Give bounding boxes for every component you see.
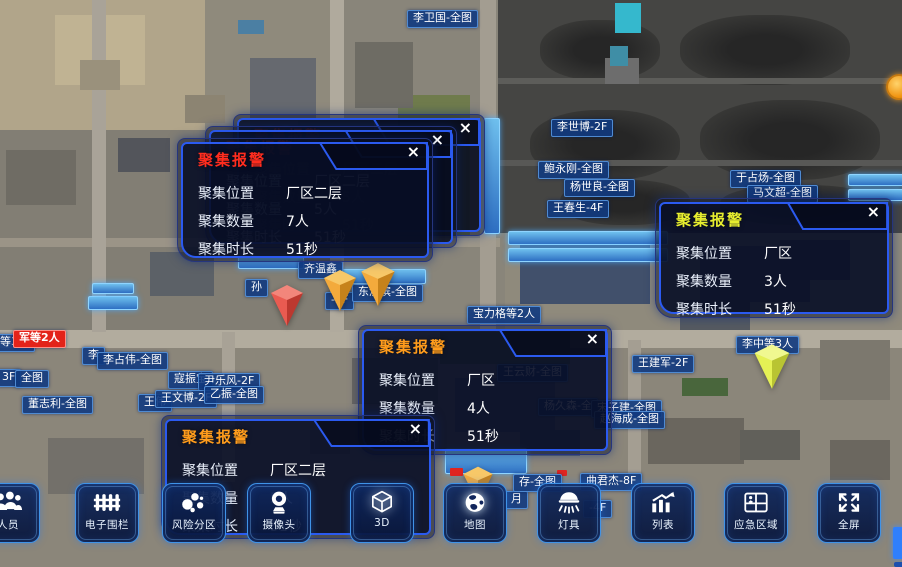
bubbles-button[interactable]: 风险分区 — [162, 483, 226, 543]
field-label: 聚集位置 — [198, 183, 286, 203]
tool-label: 人员 — [0, 517, 39, 532]
building — [740, 430, 800, 460]
field-label: 聚集数量 — [676, 271, 764, 291]
field-label: 聚集时长 — [676, 299, 764, 319]
people-icon — [0, 490, 23, 515]
building — [610, 46, 628, 66]
alarm-field-row: 聚集位置厂区 — [676, 243, 792, 263]
alarm-panel: 聚集报警聚集位置厂区二层聚集数量7人聚集时长51秒× — [177, 138, 433, 262]
map-pin-red[interactable] — [266, 281, 308, 327]
tool-label: 风险分区 — [163, 517, 225, 532]
alarm-field-row: 聚集数量3人 — [676, 271, 787, 291]
pipe-rack-highlight — [508, 231, 668, 245]
lamp-button[interactable]: 灯具 — [537, 483, 601, 543]
pipe-rack-highlight — [88, 296, 138, 310]
building — [80, 60, 120, 90]
lamp-icon — [554, 490, 584, 515]
person-tag[interactable]: 宝力格等2人 — [467, 306, 541, 324]
alarm-panel: 聚集报警聚集位置厂区聚集数量3人聚集时长51秒× — [655, 198, 893, 318]
field-label: 聚集位置 — [379, 370, 467, 390]
alarm-field-row: 聚集位置厂区二层 — [198, 183, 342, 203]
person-tag[interactable]: 李世博-2F — [551, 119, 613, 137]
person-tag[interactable]: 全图 — [15, 370, 49, 388]
pipe-rack-highlight — [508, 248, 668, 262]
building — [615, 3, 641, 33]
chart-icon — [648, 490, 678, 515]
field-value: 厂区二层 — [286, 183, 342, 203]
fence-icon — [92, 490, 122, 515]
fullscreen-button[interactable]: 全屏 — [817, 483, 881, 543]
person-tag[interactable]: 王春生-4F — [547, 200, 609, 218]
tool-label: 全屏 — [818, 517, 880, 532]
tool-label: 电子围栏 — [76, 517, 138, 532]
person-tag[interactable]: 王建军-2F — [632, 355, 694, 373]
tool-label: 灯具 — [538, 517, 600, 532]
person-tag[interactable]: 月 — [505, 491, 528, 509]
person-tag[interactable]: 乙振-全图 — [204, 386, 264, 404]
person-tag[interactable]: 李占伟-全图 — [97, 352, 168, 370]
tool-label: 3D — [351, 517, 413, 529]
edge-tab[interactable] — [894, 562, 902, 567]
globe-icon — [460, 490, 490, 515]
map-pin-yellow[interactable] — [750, 340, 794, 390]
coal-pile — [700, 100, 880, 180]
building — [185, 95, 225, 123]
field-value: 4人 — [467, 398, 490, 418]
alarm-panel-title: 聚集报警 — [198, 149, 266, 170]
pipe-rack-highlight — [848, 174, 902, 186]
edge-tab[interactable] — [893, 527, 902, 559]
alarm-field-row: 聚集位置厂区二层 — [182, 460, 326, 480]
alarm-field-row: 聚集位置厂区 — [379, 370, 495, 390]
close-icon[interactable]: × — [586, 331, 599, 347]
close-icon[interactable]: × — [867, 204, 880, 220]
chart-button[interactable]: 列表 — [631, 483, 695, 543]
alarm-field-row: 聚集数量7人 — [198, 211, 309, 231]
coal-path — [498, 78, 902, 84]
building — [118, 138, 170, 172]
map-pin-orange[interactable] — [320, 266, 360, 312]
field-label: 聚集时长 — [198, 239, 286, 259]
globe-button[interactable]: 地图 — [443, 483, 507, 543]
fence-button[interactable]: 电子围栏 — [75, 483, 139, 543]
emergency-button[interactable]: 应急区域 — [724, 483, 788, 543]
field-label: 聚集位置 — [676, 243, 764, 263]
cube-button[interactable]: 3D — [350, 483, 414, 543]
close-icon[interactable]: × — [409, 421, 422, 437]
people-button[interactable]: 人员 — [0, 483, 40, 543]
vegetation — [682, 378, 728, 396]
close-icon[interactable]: × — [459, 120, 472, 136]
tool-label: 列表 — [632, 517, 694, 532]
field-value: 7人 — [286, 211, 309, 231]
person-tag[interactable]: 鲍永刚-全图 — [538, 161, 609, 179]
field-value: 厂区二层 — [270, 460, 326, 480]
alarm-field-row: 聚集时长51秒 — [676, 299, 796, 319]
fullscreen-icon — [834, 490, 864, 515]
emergency-icon — [741, 490, 771, 515]
field-label: 聚集数量 — [198, 211, 286, 231]
alarm-panel-title: 聚集报警 — [676, 209, 744, 230]
person-tag[interactable]: 李卫国-全图 — [407, 10, 478, 28]
field-label: 聚集位置 — [182, 460, 270, 480]
tool-label: 应急区域 — [725, 517, 787, 532]
field-value: 51秒 — [286, 239, 318, 259]
field-value: 3人 — [764, 271, 787, 291]
building — [820, 340, 890, 400]
building — [355, 42, 413, 108]
coal-pile — [680, 15, 850, 85]
building — [238, 20, 264, 34]
close-icon[interactable]: × — [407, 144, 420, 160]
coal-pile — [540, 20, 660, 80]
person-tag-alert[interactable]: 军等2人 — [13, 330, 66, 348]
alarm-panel-title: 聚集报警 — [182, 426, 250, 447]
camera-icon — [264, 490, 294, 515]
bubbles-icon — [179, 490, 209, 515]
camera-button[interactable]: 摄像头 — [247, 483, 311, 543]
pipe-rack-highlight — [484, 118, 500, 234]
person-tag[interactable]: 董志利-全图 — [22, 396, 93, 414]
alarm-field-row: 聚集时长51秒 — [198, 239, 318, 259]
field-value: 厂区 — [764, 243, 792, 263]
app-root: 李卫国-全图李世博-2F鲍永刚-全图杨世良-全图王春生-4F于占炀-全图马文超-… — [0, 0, 902, 567]
person-tag[interactable]: 杨世良-全图 — [564, 179, 635, 197]
tool-label: 摄像头 — [248, 517, 310, 532]
person-tag[interactable]: 孙 — [245, 279, 268, 297]
field-value: 51秒 — [764, 299, 796, 319]
building — [830, 440, 890, 480]
cube-icon — [367, 490, 397, 515]
field-value: 厂区 — [467, 370, 495, 390]
map-pin-orange[interactable] — [356, 259, 400, 307]
field-value: 51秒 — [467, 426, 499, 446]
alarm-panel-title: 聚集报警 — [379, 336, 447, 357]
pipe-rack-highlight — [92, 283, 134, 294]
building — [6, 150, 76, 205]
tool-label: 地图 — [444, 517, 506, 532]
